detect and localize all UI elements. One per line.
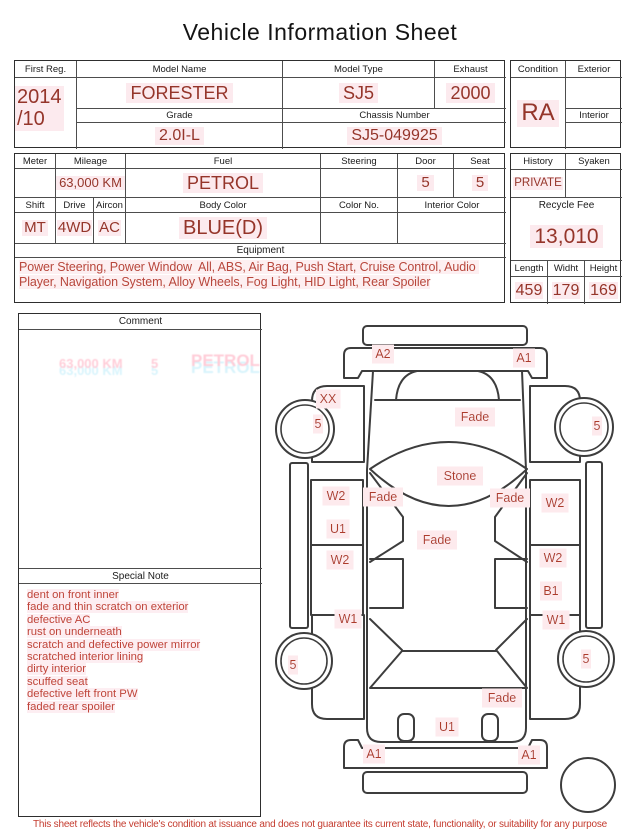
damage-label: A2 [375, 347, 390, 361]
front-left-wheel [276, 400, 334, 458]
vehicle-information-sheet: Vehicle Information Sheet First Reg. 201… [0, 0, 640, 835]
steering-header: Steering [321, 154, 398, 169]
fuel-header: Fuel [126, 154, 321, 169]
rear-lower-strip [363, 772, 527, 793]
damage-label: A1 [516, 351, 531, 365]
damage-label: Fade [461, 410, 490, 424]
right-sill [586, 462, 602, 628]
aircon-value: AC [94, 213, 126, 244]
damage-label: W1 [547, 613, 566, 627]
damage-label: A1 [521, 748, 536, 762]
grade-value: 2.0I-L [77, 123, 283, 149]
damage-label: U1 [439, 720, 455, 734]
left-sill [290, 463, 308, 628]
color-no-header: Color No. [321, 198, 398, 213]
right-front-door [530, 480, 580, 545]
special-note-line: scratch and defective power mirror [27, 639, 260, 651]
seat-header: Seat [454, 154, 506, 169]
body-color-value: BLUE(D) [126, 213, 321, 244]
length-header: Length [511, 261, 548, 277]
left-a-pillar-line [370, 473, 403, 562]
right-inner-panel [495, 559, 527, 608]
car-damage-diagram: A2 A1 XX 5 Fade 5 Stone Fade Fade W2 W2 … [270, 310, 640, 815]
special-note-list: dent on front inner fade and thin scratc… [19, 584, 262, 818]
height-value: 169 [585, 277, 622, 304]
exhaust-header: Exhaust [435, 61, 506, 78]
history-fee-table: History PRIVATE Syaken Recycle Fee 13,01… [510, 153, 621, 303]
equipment-header: Equipment [15, 244, 506, 258]
body-color-header: Body Color [126, 198, 321, 213]
damage-label: W1 [339, 612, 358, 626]
damage-label: W2 [327, 489, 346, 503]
damage-label: Fade [369, 490, 398, 504]
aircon-header: Aircon [94, 198, 126, 213]
syaken-value [566, 170, 622, 198]
damage-label: Stone [444, 469, 477, 483]
length-value: 459 [511, 277, 548, 304]
exhaust-value: 2000 [435, 78, 506, 109]
chassis-number-value: SJ5-049925 [283, 123, 506, 149]
special-note-line: fade and thin scratch on exterior [27, 601, 260, 613]
interior-header: Interior [566, 109, 622, 123]
special-note-line: dent on front inner [27, 589, 260, 601]
special-note-line: dirty interior [27, 663, 260, 675]
special-note-header: Special Note [19, 568, 262, 584]
left-headlight-arc [396, 371, 417, 400]
door-header: Door [398, 154, 454, 169]
damage-label: A1 [366, 747, 381, 761]
damage-label: Fade [496, 491, 525, 505]
width-value: 179 [548, 277, 585, 304]
interior-color-value [398, 213, 506, 244]
recycle-fee-header: Recycle Fee [511, 198, 622, 213]
damage-label: XX [320, 392, 337, 406]
exterior-header: Exterior [566, 61, 622, 78]
first-reg-header: First Reg. [15, 61, 77, 78]
damage-label: Fade [423, 533, 452, 547]
condition-value: RA [511, 78, 566, 149]
fuel-value: PETROL [126, 169, 321, 198]
car-body-outline [367, 371, 526, 742]
page-title: Vehicle Information Sheet [0, 19, 640, 46]
damage-label: 5 [583, 652, 590, 666]
first-reg-text: 2014/10 [15, 86, 64, 131]
damage-label: W2 [546, 496, 565, 510]
steering-value [321, 169, 398, 198]
shift-header: Shift [15, 198, 56, 213]
left-tail-lamp [398, 714, 414, 741]
shift-value: MT [15, 213, 56, 244]
grade-header: Grade [77, 109, 283, 123]
comment-area: 63,000 KM 5 PETROL [19, 330, 262, 568]
ghost-text: 63,000 KM [59, 356, 123, 371]
interior-value [566, 123, 622, 149]
special-note-line: scratched interior lining [27, 651, 260, 663]
width-header: Widht [548, 261, 585, 277]
spare-tire [561, 758, 615, 812]
recycle-fee-value: 13,010 [511, 213, 622, 261]
model-name-value: FORESTER [77, 78, 283, 109]
comment-header: Comment [19, 314, 262, 330]
drive-value: 4WD [56, 213, 94, 244]
damage-label: B1 [543, 584, 558, 598]
damage-label: 5 [594, 419, 601, 433]
model-type-value: SJ5 [283, 78, 435, 109]
syaken-header: Syaken [566, 154, 622, 170]
front-right-wheel [555, 398, 613, 456]
color-no-value [321, 213, 398, 244]
right-tail-lamp [482, 714, 498, 741]
drive-header: Drive [56, 198, 94, 213]
ghost-text: PETROL [191, 351, 260, 371]
damage-label: W2 [331, 553, 350, 567]
comment-box: Comment 63,000 KM 5 PETROL Special Note … [18, 313, 261, 817]
spec-table: Meter Mileage 63,000 KM Fuel PETROL Stee… [14, 153, 505, 303]
disclaimer-text: This sheet reflects the vehicle's condit… [0, 819, 640, 830]
ghost-text: 5 [151, 356, 158, 371]
door-value: 5 [398, 169, 454, 198]
mileage-value: 63,000 KM [56, 169, 126, 198]
history-header: History [511, 154, 566, 170]
front-grille-strip [363, 326, 527, 345]
exterior-value [566, 78, 622, 109]
damage-label: W2 [544, 551, 563, 565]
right-a-pillar-line [495, 473, 527, 562]
damage-label: 5 [290, 658, 297, 672]
right-c-pillar-line [496, 619, 527, 650]
seat-value: 5 [454, 169, 506, 198]
chassis-number-header: Chassis Number [283, 109, 506, 123]
first-reg-value: 2014/10 [15, 78, 77, 149]
left-c-pillar-line [370, 619, 402, 650]
rear-window [370, 651, 527, 688]
condition-table: Condition RA Exterior Interior [510, 60, 621, 148]
height-header: Height [585, 261, 622, 277]
meter-header: Meter [15, 154, 56, 169]
damage-label: Fade [488, 691, 517, 705]
mileage-header: Mileage [56, 154, 126, 169]
equipment-value: Power Steering, Power Window All, ABS, A… [15, 258, 506, 304]
special-note-line: rust on underneath [27, 626, 260, 638]
condition-header: Condition [511, 61, 566, 78]
interior-color-header: Interior Color [398, 198, 506, 213]
rear-left-wheel [276, 633, 332, 689]
model-name-header: Model Name [77, 61, 283, 78]
special-note-line: faded rear spoiler [27, 701, 260, 713]
history-value: PRIVATE [511, 170, 566, 198]
special-note-line: defective left front PW [27, 688, 260, 700]
model-type-header: Model Type [283, 61, 435, 78]
damage-label: 5 [315, 417, 322, 431]
meter-value [15, 169, 56, 198]
special-note-line: scuffed seat [27, 676, 260, 688]
special-note-line: defective AC [27, 614, 260, 626]
right-headlight-arc [478, 371, 499, 400]
damage-label: U1 [330, 522, 346, 536]
model-info-table: First Reg. 2014/10 Model Name FORESTER M… [14, 60, 505, 148]
left-inner-panel [370, 559, 403, 608]
